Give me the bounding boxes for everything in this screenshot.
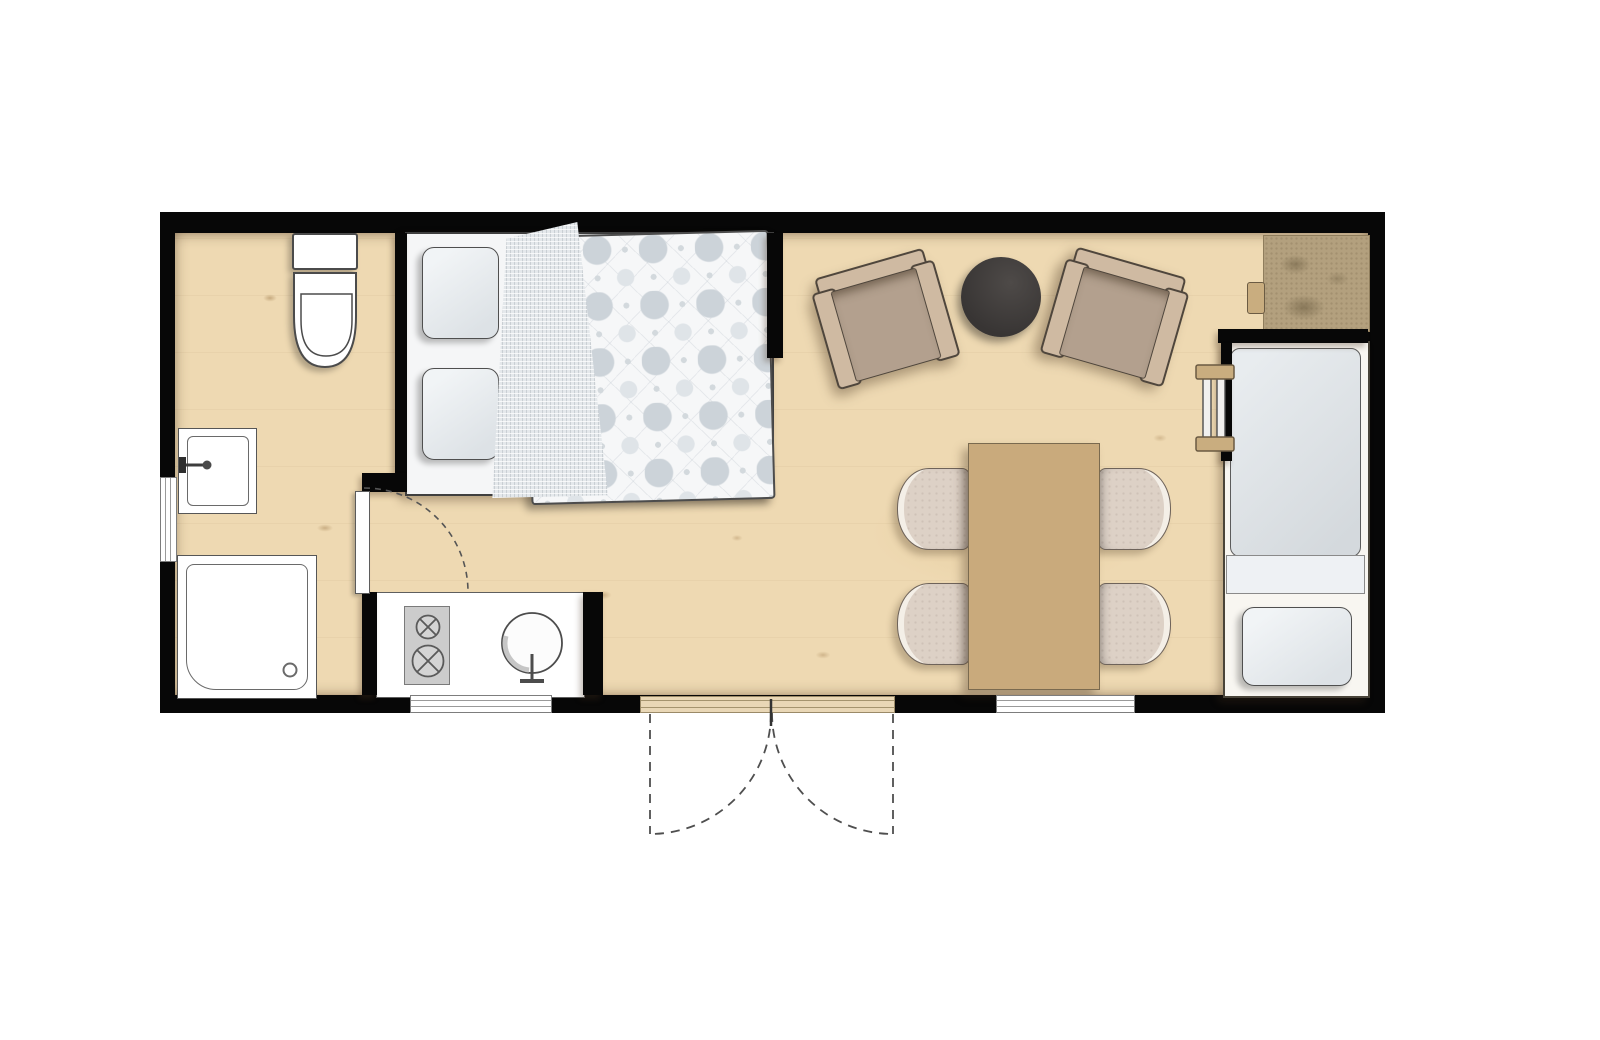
wall-bathroom-upper [395,233,407,473]
double-bed-pillow-bottom [422,368,499,460]
washbasin-bowl [187,436,249,506]
side-counter [1263,235,1370,332]
dining-chair-sw [897,583,970,665]
wall-nook-top [1218,329,1368,343]
shower-tray [177,555,317,699]
bathroom-door-leaf [355,491,370,594]
two-burner-hob [404,606,450,685]
wall-bathroom-lower [362,592,377,695]
round-coffee-table [961,257,1041,337]
single-bed [1223,341,1370,698]
side-counter-handle [1247,282,1265,314]
french-door-threshold [640,696,895,713]
single-bed-mattress [1230,348,1361,557]
dining-window [996,695,1135,713]
dining-chair-nw [897,468,970,550]
west-window [160,477,177,562]
wall-nook-left [1221,343,1232,461]
dining-table [968,443,1100,690]
shower-tray-inner [186,564,308,690]
french-doors-swing [650,713,893,834]
floor-plan-canvas [0,0,1600,1040]
double-bed-pillow-top [422,247,499,339]
single-bed-pillow [1242,607,1352,686]
wall-bathroom-jog [362,473,407,492]
washbasin [178,428,257,514]
wall-bed-right-stub [767,233,783,358]
dining-chair-se [1098,583,1171,665]
floor-plan [160,212,1385,713]
dining-chair-ne [1098,468,1171,550]
single-bed-sheet-band [1226,555,1365,594]
kitchen-window [410,695,552,713]
wall-kitchen-right [583,592,603,695]
